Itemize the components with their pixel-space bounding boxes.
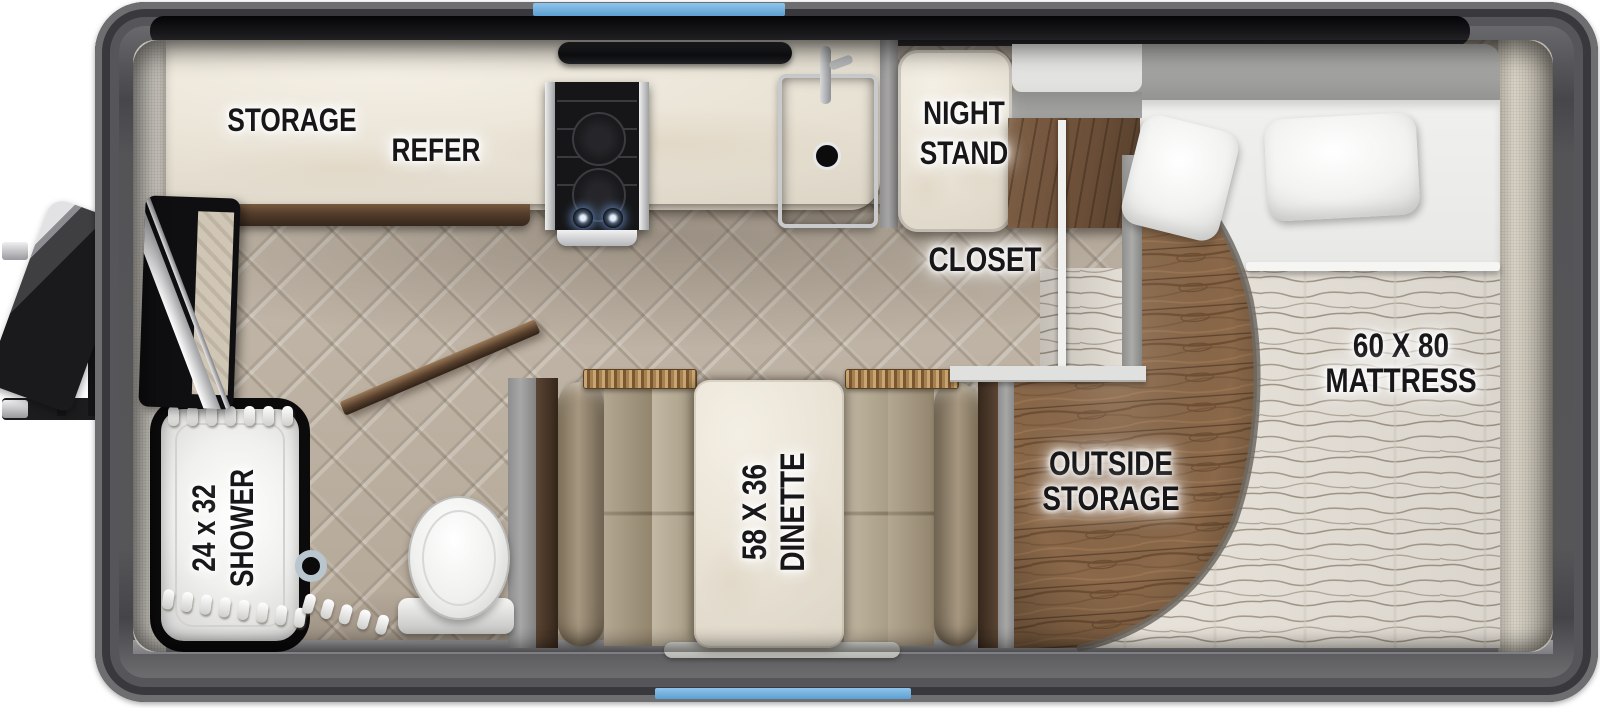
sheet-fold bbox=[1246, 262, 1500, 271]
dinette-label: 58 X 36DINETTE bbox=[736, 452, 812, 571]
bed-pillow bbox=[1263, 112, 1420, 222]
closet-label: CLOSET bbox=[928, 240, 1041, 280]
mattress-label: 60 X 80MATTRESS bbox=[1325, 329, 1476, 399]
bed-base-band bbox=[950, 366, 1146, 382]
outside-storage-label: OUTSIDESTORAGE bbox=[1042, 447, 1179, 517]
rear-accent-bar bbox=[655, 688, 911, 699]
front-accent-bar bbox=[533, 3, 785, 16]
floorplan-canvas: STORAGE REFER NIGHTSTAND CLOSET 60 X 80M… bbox=[0, 0, 1600, 708]
shower-label: 24 x 32SHOWER bbox=[185, 469, 261, 587]
storage-label: STORAGE bbox=[227, 100, 356, 140]
closet-divider bbox=[1058, 120, 1066, 380]
refer-label: REFER bbox=[392, 130, 481, 170]
night-stand-label: NIGHTSTAND bbox=[920, 93, 1008, 173]
